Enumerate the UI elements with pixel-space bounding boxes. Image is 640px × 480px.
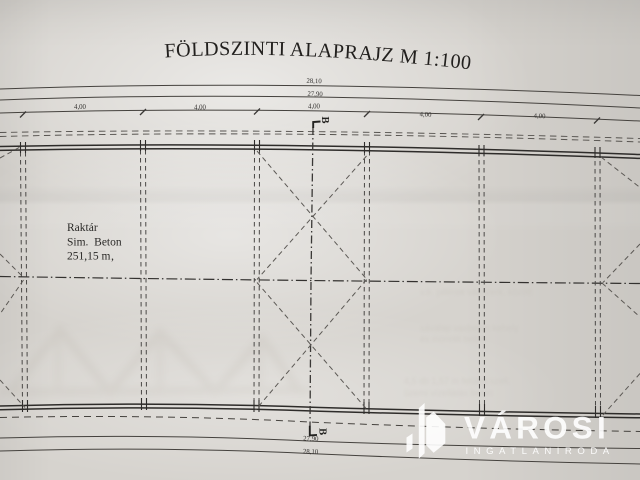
svg-text:VÁROSI: VÁROSI [464,410,610,446]
svg-text:INGATLANIRODA: INGATLANIRODA [466,446,615,457]
